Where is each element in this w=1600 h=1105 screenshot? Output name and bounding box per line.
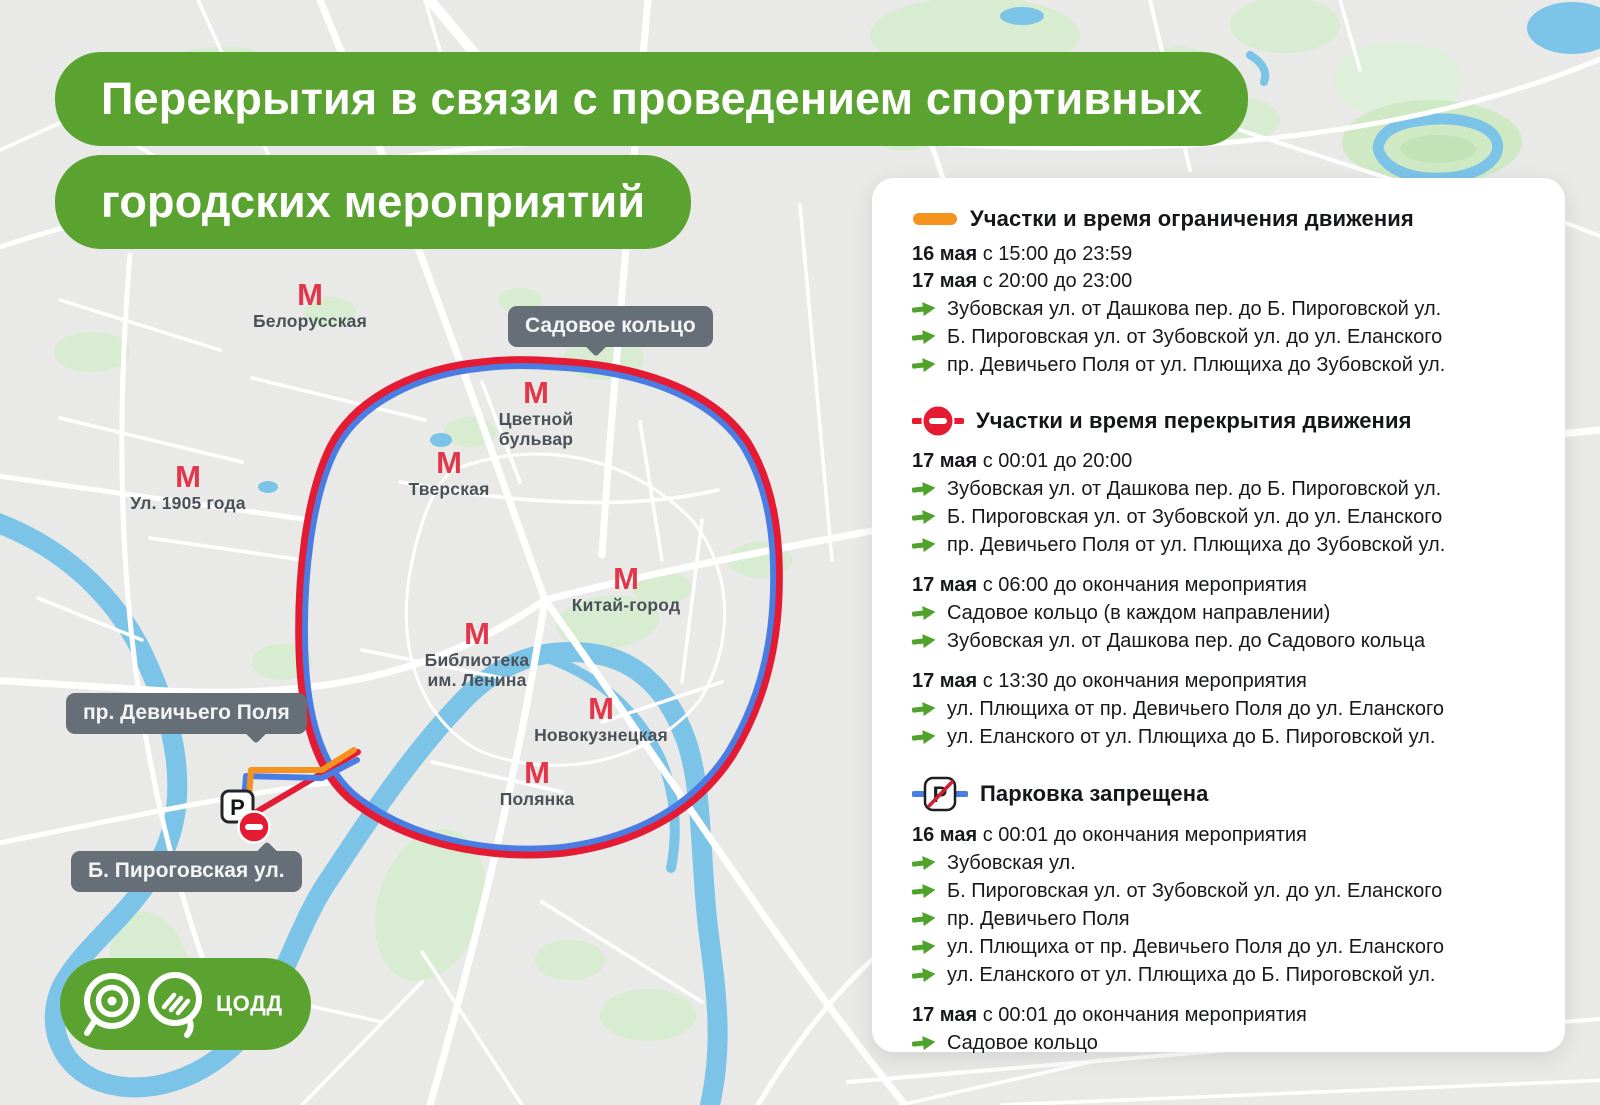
- date-rest: с 15:00 до 23:59: [977, 243, 1132, 265]
- arrow-icon: [911, 480, 937, 498]
- legend-section: PПарковка запрещена16 мая с 00:01 до око…: [912, 775, 1547, 1057]
- date-bold: 16 мая: [912, 243, 977, 265]
- arrow-icon: [911, 910, 937, 928]
- street-item-text: ул. Плющиха от пр. Девичьего Поля до ул.…: [947, 695, 1444, 723]
- date-line: 16 мая с 15:00 до 23:59: [912, 241, 1547, 268]
- metro-station: МТверская: [408, 450, 489, 499]
- codd-logo: ЦОДД: [60, 958, 311, 1050]
- street-item-text: Зубовская ул. от Дашкова пер. до Садовог…: [947, 627, 1425, 655]
- arrow-icon: [911, 938, 937, 956]
- codd-logo-text: ЦОДД: [216, 991, 283, 1017]
- infographic-poster: P МБелорусскаяМУл. 1905 годаМЦветной бул…: [0, 0, 1600, 1105]
- street-item-text: Зубовская ул. от Дашкова пер. до Б. Пиро…: [947, 295, 1441, 323]
- arrow-icon: [911, 536, 937, 554]
- street-item-text: ул. Еланского от ул. Плющиха до Б. Пирог…: [947, 961, 1435, 989]
- no-entry-icon: [912, 403, 964, 439]
- street-item-text: ул. Еланского от ул. Плющиха до Б. Пирог…: [947, 723, 1435, 751]
- street-item: пр. Девичьего Поля от ул. Плющиха до Зуб…: [912, 531, 1547, 559]
- metro-station: МПолянка: [500, 760, 575, 809]
- street-item: ул. Еланского от ул. Плющиха до Б. Пирог…: [912, 723, 1547, 751]
- street-item-text: ул. Плющиха от пр. Девичьего Поля до ул.…: [947, 933, 1444, 961]
- legend-group: 17 мая с 00:01 до 20:00Зубовская ул. от …: [912, 448, 1547, 559]
- metro-logo-icon: М: [499, 380, 574, 405]
- title-banner-line2: городских мероприятий: [55, 155, 691, 249]
- date-bold: 17 мая: [912, 270, 977, 292]
- metro-station: МНовокузнецкая: [534, 696, 668, 745]
- date-rest: с 13:30 до окончания мероприятия: [977, 670, 1307, 692]
- date-bold: 17 мая: [912, 1004, 977, 1026]
- metro-logo-icon: М: [500, 760, 575, 785]
- metro-station-label: Полянка: [500, 789, 575, 809]
- street-item-text: Б. Пироговская ул. от Зубовской ул. до у…: [947, 323, 1442, 351]
- arrow-icon: [911, 632, 937, 650]
- no-parking-icon: P: [912, 775, 968, 813]
- arrow-icon: [911, 328, 937, 346]
- street-item-text: Садовое кольцо: [947, 1029, 1098, 1057]
- legend-group: 17 мая с 13:30 до окончания мероприятияу…: [912, 668, 1547, 751]
- date-bold: 17 мая: [912, 450, 977, 472]
- legend-section-header: Участки и время перекрытия движения: [912, 403, 1547, 439]
- date-bold: 17 мая: [912, 574, 977, 596]
- street-item: Б. Пироговская ул. от Зубовской ул. до у…: [912, 503, 1547, 531]
- street-item: Зубовская ул. от Дашкова пер. до Б. Пиро…: [912, 475, 1547, 503]
- legend-section-header: Участки и время ограничения движения: [912, 206, 1547, 232]
- metro-logo-icon: М: [425, 621, 530, 646]
- metro-station-label: Тверская: [408, 479, 489, 499]
- metro-station-label: Библиотека им. Ленина: [425, 650, 530, 690]
- date-line: 17 мая с 06:00 до окончания мероприятия: [912, 572, 1547, 599]
- street-item: ул. Еланского от ул. Плющиха до Б. Пирог…: [912, 961, 1547, 989]
- arrow-icon: [911, 854, 937, 872]
- street-item: Зубовская ул. от Дашкова пер. до Б. Пиро…: [912, 295, 1547, 323]
- street-item-text: Зубовская ул. от Дашкова пер. до Б. Пиро…: [947, 475, 1441, 503]
- panel-body: Участки и время ограничения движения16 м…: [912, 206, 1547, 1057]
- street-item: Садовое кольцо: [912, 1029, 1547, 1057]
- metro-station: МБелорусская: [253, 282, 367, 331]
- street-item: Б. Пироговская ул. от Зубовской ул. до у…: [912, 323, 1547, 351]
- legend-group: 16 мая с 15:00 до 23:5917 мая с 20:00 до…: [912, 241, 1547, 379]
- date-rest: с 00:01 до окончания мероприятия: [977, 1004, 1307, 1026]
- legend-group: 17 мая с 00:01 до окончания мероприятияС…: [912, 1002, 1547, 1057]
- date-rest: с 06:00 до окончания мероприятия: [977, 574, 1307, 596]
- arrow-icon: [911, 728, 937, 746]
- street-item: ул. Плющиха от пр. Девичьего Поля до ул.…: [912, 933, 1547, 961]
- moscow-transport-icon: [76, 968, 204, 1040]
- metro-station-label: Белорусская: [253, 311, 367, 331]
- date-line: 17 мая с 13:30 до окончания мероприятия: [912, 668, 1547, 695]
- legend-group: 17 мая с 06:00 до окончания мероприятияС…: [912, 572, 1547, 655]
- date-rest: с 00:01 до 20:00: [977, 450, 1132, 472]
- street-item-text: Б. Пироговская ул. от Зубовской ул. до у…: [947, 877, 1442, 905]
- metro-logo-icon: М: [408, 450, 489, 475]
- date-rest: с 00:01 до окончания мероприятия: [977, 824, 1307, 846]
- legend-section: Участки и время ограничения движения16 м…: [912, 206, 1547, 379]
- legend-section-header: PПарковка запрещена: [912, 775, 1547, 813]
- metro-logo-icon: М: [534, 696, 668, 721]
- legend-panel: Участки и время ограничения движения16 м…: [872, 178, 1565, 1052]
- street-item: ул. Плющиха от пр. Девичьего Поля до ул.…: [912, 695, 1547, 723]
- date-rest: с 20:00 до 23:00: [977, 270, 1132, 292]
- map-label-bubble: Б. Пироговская ул.: [71, 851, 302, 892]
- legend-section-title: Участки и время перекрытия движения: [976, 408, 1412, 434]
- arrow-icon: [911, 356, 937, 374]
- date-line: 17 мая с 00:01 до 20:00: [912, 448, 1547, 475]
- street-item: Б. Пироговская ул. от Зубовской ул. до у…: [912, 877, 1547, 905]
- street-item-text: Б. Пироговская ул. от Зубовской ул. до у…: [947, 503, 1442, 531]
- date-bold: 17 мая: [912, 670, 977, 692]
- street-item-text: Зубовская ул.: [947, 849, 1076, 877]
- street-item-text: пр. Девичьего Поля от ул. Плющиха до Зуб…: [947, 531, 1445, 559]
- metro-station-label: Ул. 1905 года: [130, 493, 245, 513]
- date-line: 17 мая с 20:00 до 23:00: [912, 268, 1547, 295]
- street-item: пр. Девичьего Поля: [912, 905, 1547, 933]
- metro-station: МБиблиотека им. Ленина: [425, 621, 530, 690]
- arrow-icon: [911, 604, 937, 622]
- metro-station: МЦветной бульвар: [499, 380, 574, 449]
- metro-logo-icon: М: [130, 464, 245, 489]
- legend-section-title: Участки и время ограничения движения: [970, 206, 1414, 232]
- street-item: Зубовская ул.: [912, 849, 1547, 877]
- metro-station-label: Новокузнецкая: [534, 725, 668, 745]
- arrow-icon: [911, 882, 937, 900]
- date-line: 16 мая с 00:01 до окончания мероприятия: [912, 822, 1547, 849]
- arrow-icon: [911, 300, 937, 318]
- street-item: Зубовская ул. от Дашкова пер. до Садовог…: [912, 627, 1547, 655]
- legend-section-title: Парковка запрещена: [980, 781, 1209, 807]
- metro-station: МКитай-город: [572, 566, 681, 615]
- date-bold: 16 мая: [912, 824, 977, 846]
- metro-logo-icon: М: [253, 282, 367, 307]
- arrow-icon: [911, 700, 937, 718]
- map-label-bubble: пр. Девичьего Поля: [66, 693, 307, 734]
- metro-station-label: Китай-город: [572, 595, 681, 615]
- title-banner-line1: Перекрытия в связи с проведением спортив…: [55, 52, 1248, 146]
- arrow-icon: [911, 508, 937, 526]
- street-item: Садовое кольцо (в каждом направлении): [912, 599, 1547, 627]
- street-item-text: пр. Девичьего Поля от ул. Плющиха до Зуб…: [947, 351, 1445, 379]
- map-label-bubble: Садовое кольцо: [508, 306, 713, 347]
- arrow-icon: [911, 966, 937, 984]
- street-item-text: Садовое кольцо (в каждом направлении): [947, 599, 1330, 627]
- metro-station: МУл. 1905 года: [130, 464, 245, 513]
- restricted-line-icon: [912, 212, 958, 226]
- metro-logo-icon: М: [572, 566, 681, 591]
- legend-group: 16 мая с 00:01 до окончания мероприятияЗ…: [912, 822, 1547, 989]
- metro-station-label: Цветной бульвар: [499, 409, 574, 449]
- street-item-text: пр. Девичьего Поля: [947, 905, 1130, 933]
- legend-section: Участки и время перекрытия движения17 ма…: [912, 403, 1547, 751]
- street-item: пр. Девичьего Поля от ул. Плющиха до Зуб…: [912, 351, 1547, 379]
- arrow-icon: [911, 1034, 937, 1052]
- date-line: 17 мая с 00:01 до окончания мероприятия: [912, 1002, 1547, 1029]
